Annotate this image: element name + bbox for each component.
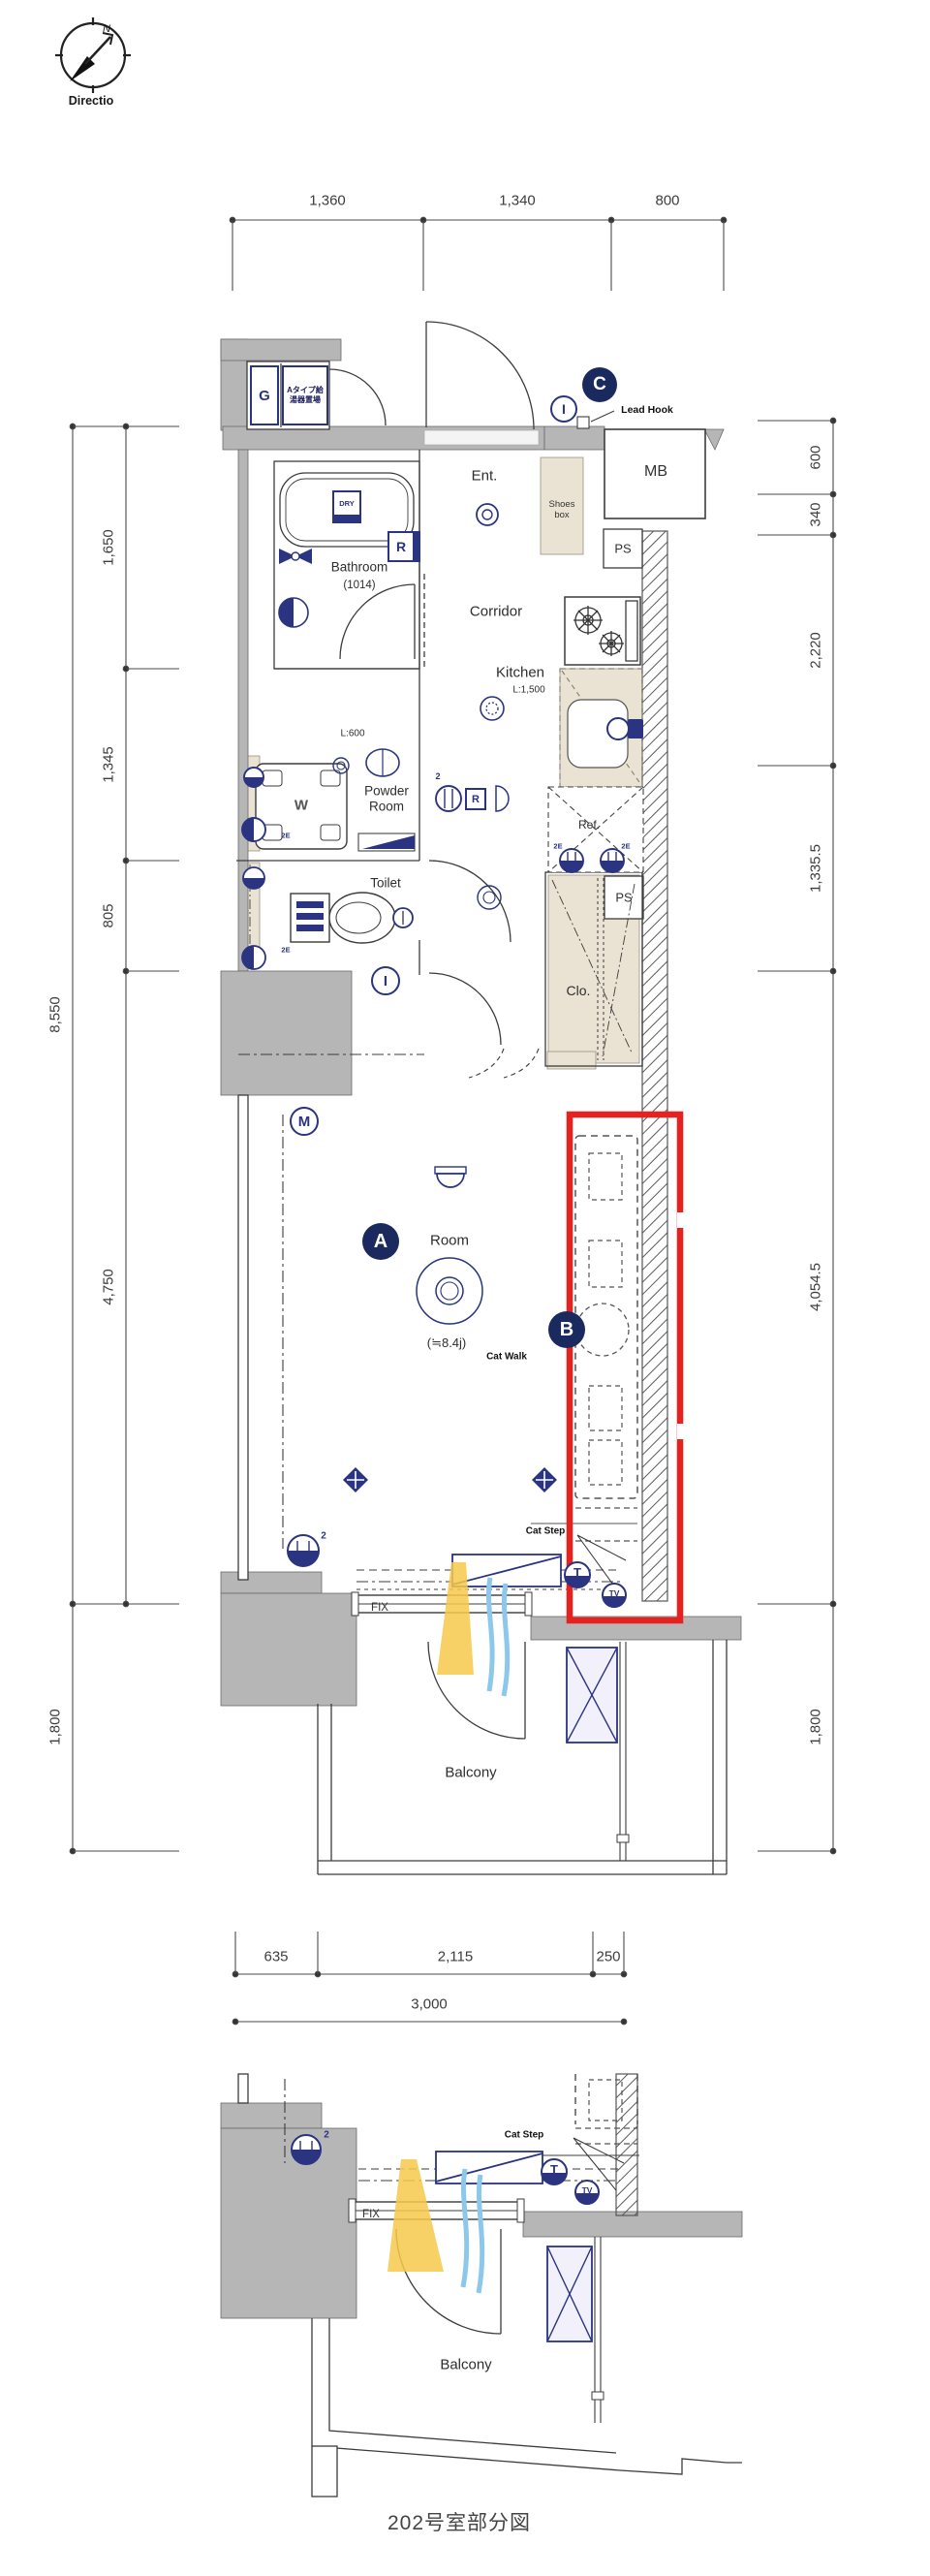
dry-box: DRY	[332, 490, 361, 523]
water-heater-box: Aタイプ給湯器置場	[282, 365, 328, 425]
room-label-toilet: Toilet	[370, 876, 401, 891]
marker-m: M	[290, 1107, 319, 1136]
balcony-hatch-box	[567, 1648, 617, 1743]
room-label-closet: Clo.	[567, 983, 591, 998]
dim-left-4: 4,750	[101, 1269, 117, 1305]
marker-tv-2: TV	[574, 2180, 600, 2205]
powder-mirror-icon	[358, 833, 415, 851]
dim-top-1: 1,360	[309, 193, 346, 209]
dimension-lines	[70, 217, 836, 2025]
dim-left-1: 1,650	[101, 529, 117, 566]
room-label-corridor: Corridor	[470, 604, 522, 620]
dim-bottom-2: 2,115	[438, 1949, 473, 1965]
dim-right-4: 1,335.5	[808, 844, 824, 893]
ps-label-1: PS	[614, 542, 631, 556]
marker-c: C	[582, 367, 617, 402]
room-size-label: (≒8.4j)	[427, 1335, 467, 1351]
room-label-bathroom-size: (1014)	[343, 580, 375, 591]
entry-light-icon	[477, 504, 498, 525]
cat-walk	[531, 1136, 637, 1591]
washer-level-label: L:600	[340, 729, 364, 739]
marker-t-2: T	[541, 2158, 568, 2185]
marker-a: A	[362, 1223, 399, 1260]
kitchen-light-icon	[480, 697, 504, 720]
outlet-2e-1: 2E	[553, 842, 562, 851]
dim-right-3: 2,220	[808, 632, 824, 669]
wall-light-icon	[435, 1167, 466, 1187]
cat-walk-label: Cat Walk	[486, 1352, 527, 1363]
compass-north-label: N	[103, 23, 110, 35]
room-label-room: Room	[430, 1233, 469, 1249]
dim-right-1: 600	[808, 445, 824, 469]
cat-step-label: Cat Step	[526, 1526, 566, 1537]
ps-label-2: PS	[615, 891, 632, 905]
outlet-2e-3: 2E	[281, 832, 290, 840]
lead-hook-label: Lead Hook	[621, 404, 673, 416]
outlet-sup2-corridor: 2	[435, 771, 440, 781]
marker-i-corridor: I	[371, 966, 400, 995]
mb-label: MB	[644, 463, 667, 481]
fix-window-label-2: FIX	[362, 2209, 380, 2220]
caption: 202号室部分図	[387, 2507, 531, 2536]
compass-label: Directio	[69, 94, 114, 108]
marker-b: B	[548, 1311, 585, 1348]
dim-bottom-3: 250	[596, 1949, 620, 1965]
dim-left-2: 1,345	[101, 746, 117, 783]
dim-top-2: 1,340	[499, 193, 536, 209]
floorplan-page: Directio N 1,360 1,340 800 8,550 1,800 1…	[0, 0, 930, 2576]
room-label-powder: Powder Room	[356, 783, 418, 813]
room-label-kitchen: Kitchen	[496, 665, 544, 681]
fix-window-label: FIX	[371, 1602, 388, 1614]
shower-icon	[279, 598, 308, 627]
cat-step-label-2: Cat Step	[505, 2130, 544, 2141]
dim-right-2: 340	[808, 502, 824, 526]
room-label-bathroom: Bathroom	[331, 560, 388, 575]
room-label-balcony: Balcony	[445, 1765, 496, 1781]
gas-box: G	[250, 365, 279, 425]
dim-left-3: 805	[101, 903, 117, 927]
room-label-balcony-2: Balcony	[440, 2357, 491, 2373]
r-box-corridor: R	[465, 788, 486, 810]
outlet-2e-2: 2E	[621, 842, 630, 851]
outlet-sup2-bottom: 2	[324, 2130, 329, 2141]
washer-label: W	[294, 798, 308, 814]
outlet-sup2-room: 2	[321, 1531, 326, 1542]
dim-left-outer-2: 1,800	[47, 1709, 64, 1745]
ceiling-light-icon	[417, 1258, 482, 1324]
marker-tv: TV	[602, 1583, 627, 1608]
floorplan-linework	[0, 0, 930, 2576]
dim-top-3: 800	[655, 193, 679, 209]
dim-left-outer-1: 8,550	[47, 996, 64, 1033]
compass-icon	[55, 17, 131, 93]
dim-bottom-total: 3,000	[411, 1996, 448, 2013]
r-box-bath: R	[387, 531, 415, 562]
marker-i-entry: I	[550, 395, 577, 423]
dim-right-6: 1,800	[808, 1709, 824, 1745]
ceiling-diamond-icons	[343, 1467, 557, 1492]
outlet-2e-4: 2E	[281, 946, 290, 955]
room-label-shoes: Shoes box	[543, 500, 580, 521]
marker-t: T	[564, 1561, 591, 1588]
ref-label: Ref.	[578, 818, 600, 832]
room-label-ent: Ent.	[472, 468, 498, 485]
ac-unit	[452, 1555, 561, 1586]
kitchen-level-label: L:1,500	[512, 685, 544, 696]
dim-bottom-1: 635	[263, 1949, 288, 1965]
room-outlet-icon	[288, 1535, 319, 1566]
dim-right-5: 4,054.5	[808, 1263, 824, 1311]
